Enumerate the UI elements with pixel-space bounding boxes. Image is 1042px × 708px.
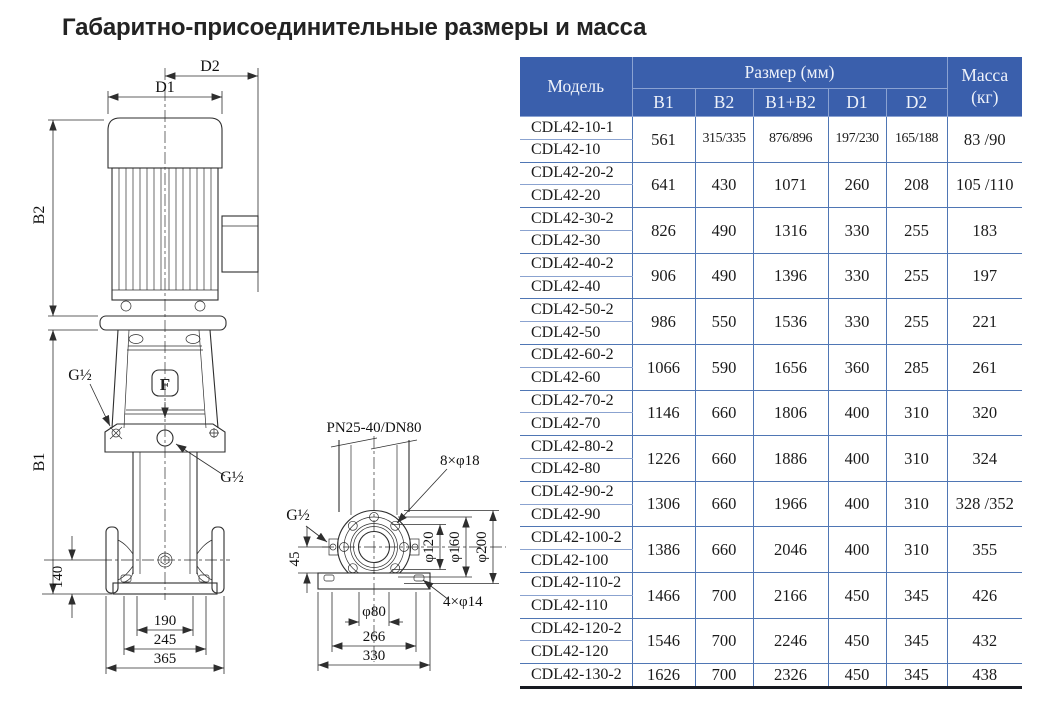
value-cell: 450 (828, 618, 886, 664)
mass-unit: (кг) (948, 87, 1023, 109)
value-cell: 450 (828, 572, 886, 618)
value-cell: 255 (886, 253, 947, 299)
table-row: CDL42-40-2 906 490 1396 330 255 197 (520, 253, 1022, 276)
col-header-b2: B2 (695, 89, 753, 117)
value-cell: 183 (947, 208, 1022, 254)
table-row: CDL42-80-2 1226 660 1886 400 310 324 (520, 436, 1022, 459)
value-cell: 1546 (632, 618, 695, 664)
model-cell: CDL42-90-2 (520, 481, 632, 504)
value-cell: 561 (632, 117, 695, 163)
value-cell: 1626 (632, 664, 695, 688)
table-row: CDL42-90-2 1306 660 1966 400 310 328 /35… (520, 481, 1022, 504)
value-cell: 1226 (632, 436, 695, 482)
value-cell: 700 (695, 618, 753, 664)
dim-label-245: 245 (154, 632, 177, 648)
brand-logo: F (160, 375, 170, 394)
col-header-model: Модель (520, 57, 632, 117)
col-header-size-group: Размер (мм) (632, 57, 947, 89)
value-cell: 165/188 (886, 117, 947, 163)
value-cell: 105 /110 (947, 162, 1022, 208)
value-cell: 1886 (753, 436, 828, 482)
value-cell: 590 (695, 344, 753, 390)
value-cell: 1071 (753, 162, 828, 208)
value-cell: 660 (695, 436, 753, 482)
model-cell: CDL42-60 (520, 367, 632, 390)
port-label-g-center: G½ (220, 469, 244, 486)
model-cell: CDL42-70-2 (520, 390, 632, 413)
value-cell: 986 (632, 299, 695, 345)
value-cell: 1536 (753, 299, 828, 345)
table-row: CDL42-20-2 641 430 1071 260 208 105 /110 (520, 162, 1022, 185)
model-cell: CDL42-50 (520, 322, 632, 345)
value-cell: 660 (695, 481, 753, 527)
model-cell: CDL42-130-2 (520, 664, 632, 688)
port-label-g-flange: G½ (286, 507, 310, 524)
value-cell: 550 (695, 299, 753, 345)
value-cell: 438 (947, 664, 1022, 688)
value-cell: 1066 (632, 344, 695, 390)
value-cell: 826 (632, 208, 695, 254)
dimensions-table: Модель Размер (мм) Масса (кг) B1 B2 B1+B… (520, 57, 1022, 689)
model-cell: CDL42-10-1 (520, 117, 632, 140)
value-cell: 345 (886, 572, 947, 618)
table-row: CDL42-50-2 986 550 1536 330 255 221 (520, 299, 1022, 322)
model-cell: CDL42-10 (520, 139, 632, 162)
value-cell: 1806 (753, 390, 828, 436)
value-cell: 430 (695, 162, 753, 208)
table-row: CDL42-100-2 1386 660 2046 400 310 355 (520, 527, 1022, 550)
col-header-b1b2: B1+B2 (753, 89, 828, 117)
value-cell: 320 (947, 390, 1022, 436)
value-cell: 641 (632, 162, 695, 208)
dim-label-140: 140 (50, 566, 66, 589)
value-cell: 1306 (632, 481, 695, 527)
value-cell: 700 (695, 572, 753, 618)
value-cell: 355 (947, 527, 1022, 573)
value-cell: 310 (886, 436, 947, 482)
value-cell: 360 (828, 344, 886, 390)
table-row: CDL42-30-2 826 490 1316 330 255 183 (520, 208, 1022, 231)
model-cell: CDL42-20-2 (520, 162, 632, 185)
mass-label: Масса (948, 65, 1023, 87)
value-cell: 330 (828, 253, 886, 299)
value-cell: 255 (886, 208, 947, 254)
table-row: CDL42-110-2 1466 700 2166 450 345 426 (520, 572, 1022, 595)
value-cell: 400 (828, 390, 886, 436)
model-cell: CDL42-80-2 (520, 436, 632, 459)
value-cell: 310 (886, 527, 947, 573)
value-cell: 400 (828, 527, 886, 573)
model-cell: CDL42-40-2 (520, 253, 632, 276)
value-cell: 1146 (632, 390, 695, 436)
value-cell: 330 (828, 208, 886, 254)
table-row: CDL42-120-2 1546 700 2246 450 345 432 (520, 618, 1022, 641)
value-cell: 2246 (753, 618, 828, 664)
value-cell: 876/896 (753, 117, 828, 163)
model-cell: CDL42-100-2 (520, 527, 632, 550)
value-cell: 83 /90 (947, 117, 1022, 163)
value-cell: 260 (828, 162, 886, 208)
model-cell: CDL42-60-2 (520, 344, 632, 367)
dim-label-45: 45 (287, 552, 303, 567)
model-cell: CDL42-110-2 (520, 572, 632, 595)
pump-technical-drawing: F D2 D1 B2 (30, 55, 522, 703)
value-cell: 197 (947, 253, 1022, 299)
connection-label: PN25-40/DN80 (326, 420, 421, 436)
value-cell: 400 (828, 436, 886, 482)
col-header-d1: D1 (828, 89, 886, 117)
col-header-d2: D2 (886, 89, 947, 117)
value-cell: 2166 (753, 572, 828, 618)
model-cell: CDL42-30-2 (520, 208, 632, 231)
dimensional-drawing: F D2 D1 B2 (30, 55, 522, 703)
model-cell: CDL42-50-2 (520, 299, 632, 322)
dim-label-190: 190 (154, 613, 177, 629)
model-cell: CDL42-100 (520, 550, 632, 573)
value-cell: 1966 (753, 481, 828, 527)
value-cell: 310 (886, 481, 947, 527)
value-cell: 285 (886, 344, 947, 390)
value-cell: 1466 (632, 572, 695, 618)
model-cell: CDL42-70 (520, 413, 632, 436)
dim-label-b1: B1 (31, 453, 48, 472)
table-row: CDL42-130-2 1626 700 2326 450 345 438 (520, 664, 1022, 688)
value-cell: 490 (695, 253, 753, 299)
front-view: F D2 D1 B2 (31, 58, 258, 674)
value-cell: 197/230 (828, 117, 886, 163)
value-cell: 208 (886, 162, 947, 208)
table-row: CDL42-60-2 1066 590 1656 360 285 261 (520, 344, 1022, 367)
value-cell: 1386 (632, 527, 695, 573)
value-cell: 1316 (753, 208, 828, 254)
value-cell: 1396 (753, 253, 828, 299)
value-cell: 2326 (753, 664, 828, 688)
dim-label-365: 365 (154, 651, 177, 667)
value-cell: 261 (947, 344, 1022, 390)
value-cell: 660 (695, 390, 753, 436)
model-cell: CDL42-120 (520, 641, 632, 664)
value-cell: 400 (828, 481, 886, 527)
port-label-g-left: G½ (68, 367, 92, 384)
model-cell: CDL42-90 (520, 504, 632, 527)
value-cell: 345 (886, 664, 947, 688)
model-cell: CDL42-80 (520, 458, 632, 481)
value-cell: 906 (632, 253, 695, 299)
dim-label-d1: D1 (155, 79, 175, 96)
table-row: CDL42-70-2 1146 660 1806 400 310 320 (520, 390, 1022, 413)
col-header-b1: B1 (632, 89, 695, 117)
value-cell: 450 (828, 664, 886, 688)
model-cell: CDL42-20 (520, 185, 632, 208)
value-cell: 1656 (753, 344, 828, 390)
page-title: Габаритно-присоединительные размеры и ма… (62, 14, 646, 42)
bolt-holes-label: 8×φ18 (440, 453, 480, 469)
dim-label-b2: B2 (31, 206, 48, 225)
flange-view: PN25-40/DN80 φ120 φ160 (286, 420, 506, 671)
value-cell: 2046 (753, 527, 828, 573)
value-cell: 328 /352 (947, 481, 1022, 527)
table-row: CDL42-10-1 561 315/335 876/896 197/230 1… (520, 117, 1022, 140)
value-cell: 324 (947, 436, 1022, 482)
value-cell: 255 (886, 299, 947, 345)
col-header-mass: Масса (кг) (947, 57, 1022, 117)
base-holes-label: 4×φ14 (443, 594, 483, 610)
value-cell: 315/335 (695, 117, 753, 163)
model-cell: CDL42-30 (520, 230, 632, 253)
value-cell: 345 (886, 618, 947, 664)
value-cell: 426 (947, 572, 1022, 618)
value-cell: 432 (947, 618, 1022, 664)
value-cell: 700 (695, 664, 753, 688)
model-cell: CDL42-110 (520, 595, 632, 618)
value-cell: 490 (695, 208, 753, 254)
value-cell: 310 (886, 390, 947, 436)
model-cell: CDL42-40 (520, 276, 632, 299)
dim-label-d2: D2 (200, 58, 220, 75)
value-cell: 660 (695, 527, 753, 573)
model-cell: CDL42-120-2 (520, 618, 632, 641)
value-cell: 221 (947, 299, 1022, 345)
value-cell: 330 (828, 299, 886, 345)
